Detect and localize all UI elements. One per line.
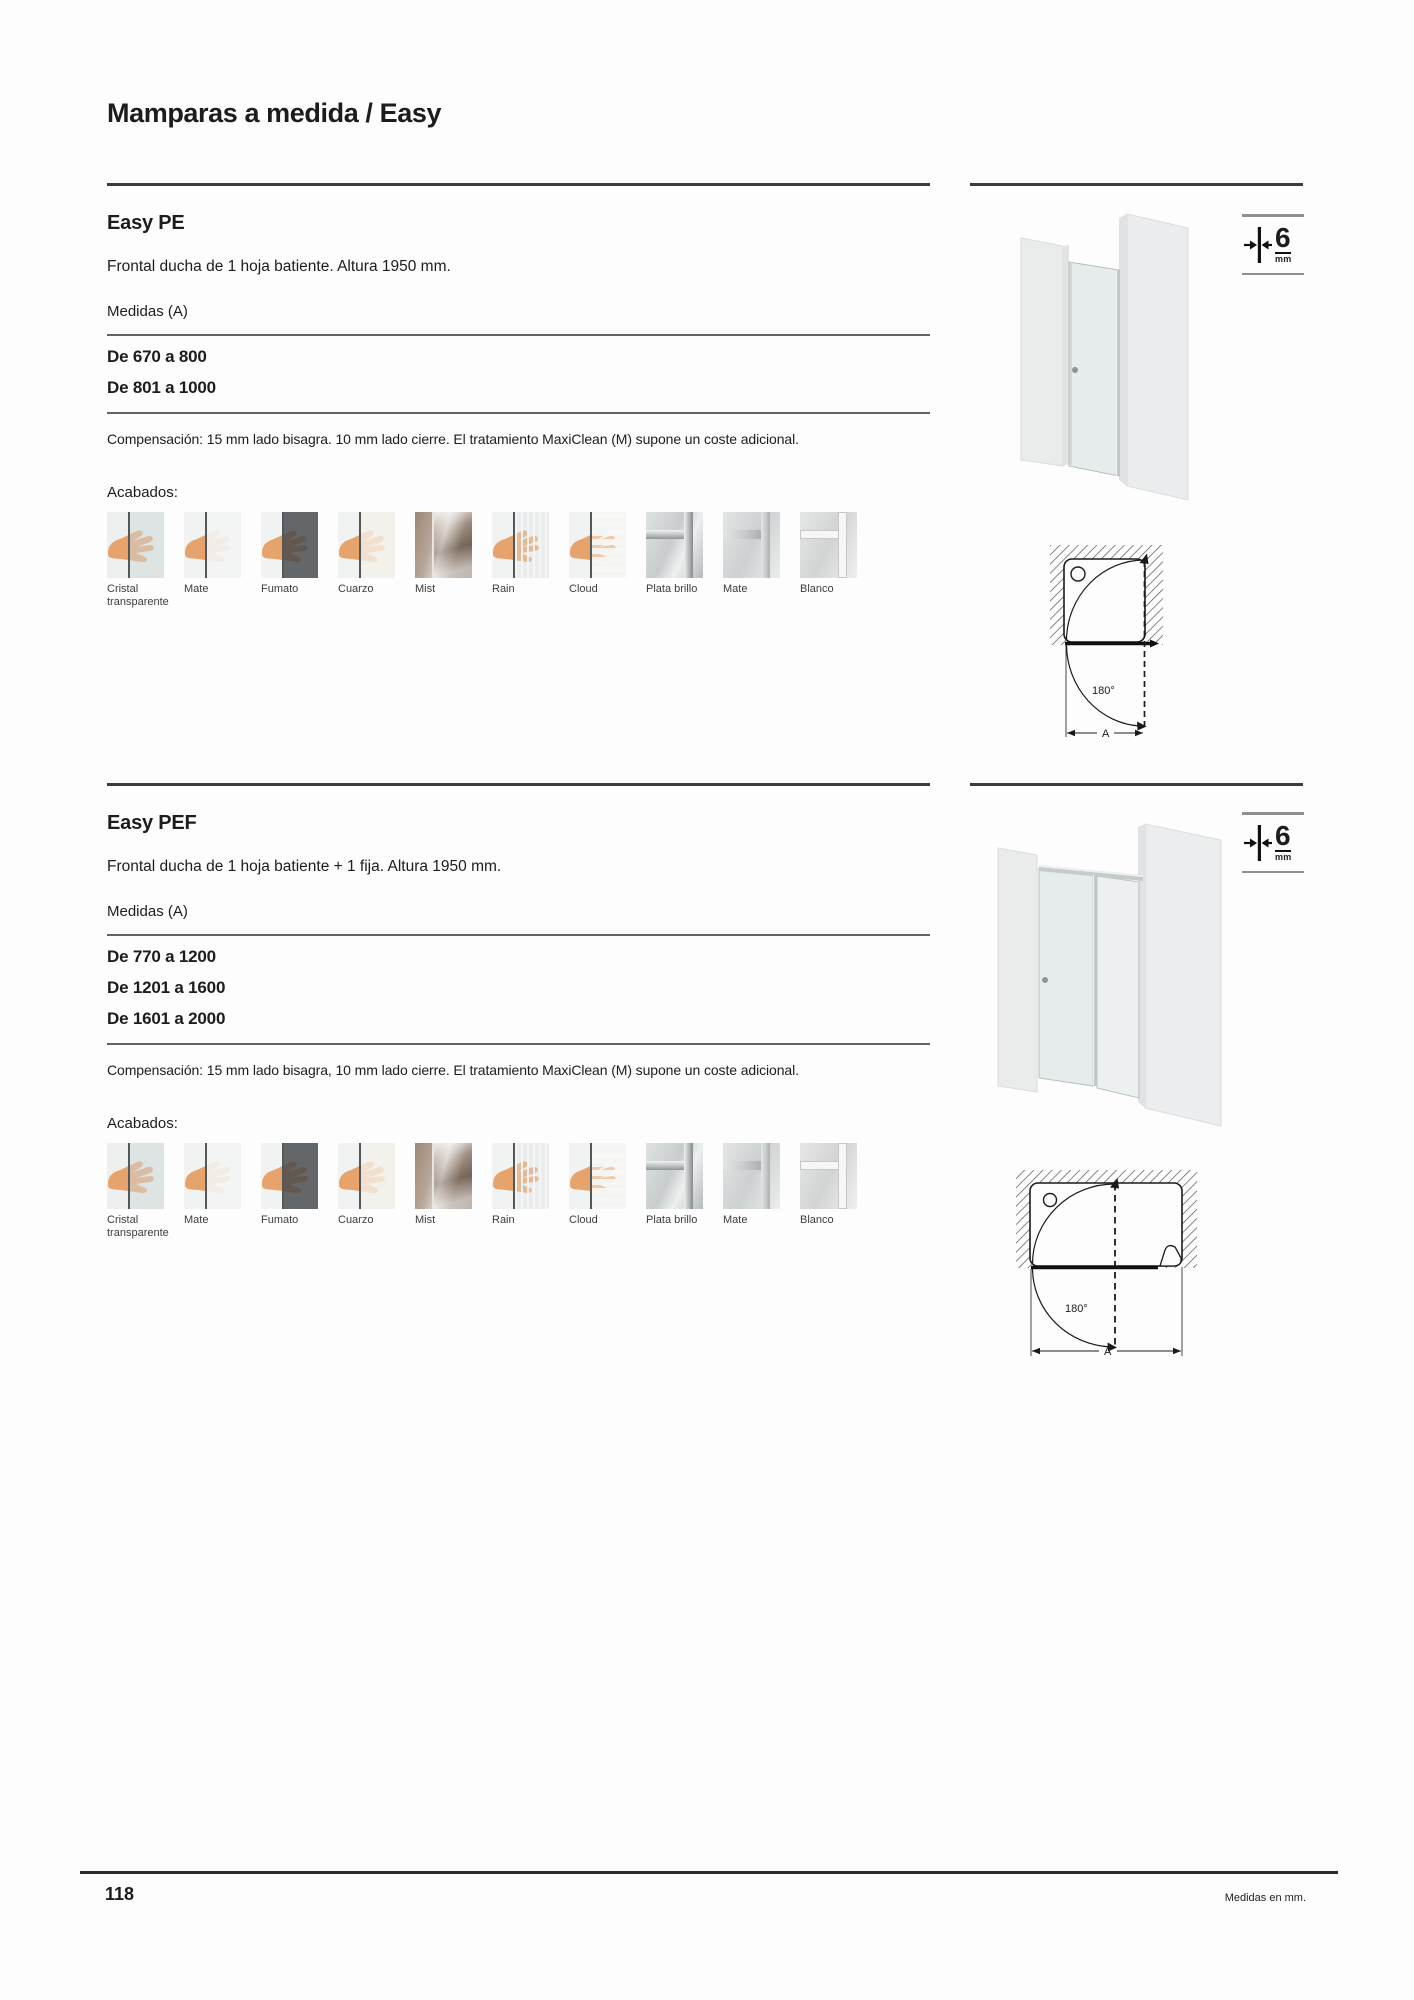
- finish-swatch-label: Cuarzo: [338, 1214, 395, 1227]
- finish-swatch-label: Mate: [184, 1214, 241, 1227]
- finish-swatch: Mate: [723, 512, 780, 609]
- finish-swatch-label: Cloud: [569, 1214, 626, 1227]
- glass-pane: [128, 1143, 164, 1209]
- section-description: Frontal ducha de 1 hoja batiente. Altura…: [107, 257, 930, 276]
- finish-swatch-label: Rain: [492, 1214, 549, 1227]
- finish-swatch-label: Mate: [184, 583, 241, 596]
- finish-swatch-label: Mate: [723, 1214, 780, 1227]
- measure-row: De 770 a 1200: [107, 940, 930, 971]
- dimension-label: A: [1102, 728, 1110, 740]
- page-number: 118: [105, 1884, 134, 1905]
- glass-pane: [590, 1143, 626, 1209]
- finish-swatch-image: [107, 1143, 164, 1209]
- angle-label: 180°: [1065, 1303, 1088, 1315]
- drain: [1071, 567, 1085, 581]
- section-easy-pe: Easy PE Frontal ducha de 1 hoja batiente…: [107, 183, 930, 609]
- finish-swatch: Cuarzo: [338, 1143, 395, 1240]
- profile-corner: [800, 1143, 857, 1209]
- finish-swatch-image: [800, 512, 857, 578]
- finish-swatch-label: Blanco: [800, 1214, 857, 1227]
- profile-corner: [646, 1143, 703, 1209]
- finish-swatch: Plata brillo: [646, 512, 703, 609]
- finish-swatch-label: Blanco: [800, 583, 857, 596]
- measures-label: Medidas (A): [107, 303, 930, 321]
- profile-corner: [800, 512, 857, 578]
- drain: [1044, 1194, 1057, 1207]
- finish-swatch-image: [107, 512, 164, 578]
- divider: [107, 1043, 930, 1045]
- finish-swatch: Fumato: [261, 1143, 318, 1240]
- section-easy-pef: Easy PEF Frontal ducha de 1 hoja batient…: [107, 783, 930, 1240]
- finish-swatch-image: [415, 512, 472, 578]
- finish-swatch: Rain: [492, 512, 549, 609]
- divider: [107, 412, 930, 414]
- finish-swatch: Blanco: [800, 1143, 857, 1240]
- measure-row: De 670 a 800: [107, 340, 930, 371]
- finish-swatch-image: [492, 512, 549, 578]
- profile-corner: [646, 512, 703, 578]
- glass-pane: [282, 1143, 318, 1209]
- finish-swatch-image: [723, 512, 780, 578]
- finish-swatch-row: Cristal transparente Mate: [107, 512, 930, 609]
- finish-swatch-image: [261, 1143, 318, 1209]
- product-render-easy-pe: [1015, 208, 1190, 523]
- section-heading: Easy PE: [107, 212, 930, 235]
- finish-swatch-label: Plata brillo: [646, 583, 703, 596]
- finish-swatch-row: Cristal transparente Mate: [107, 1143, 930, 1240]
- finish-swatch-label: Mate: [723, 583, 780, 596]
- finish-swatch: Mate: [184, 512, 241, 609]
- door-handle: [1042, 977, 1048, 983]
- finishes-label: Acabados:: [107, 1115, 930, 1133]
- measure-row: De 801 a 1000: [107, 371, 930, 402]
- finish-swatch: Blanco: [800, 512, 857, 609]
- glass-pane: [432, 1143, 472, 1209]
- glass-pane: [513, 1143, 549, 1209]
- finish-swatch-image: [492, 1143, 549, 1209]
- measures-label: Medidas (A): [107, 903, 930, 921]
- finish-swatch-image: [261, 512, 318, 578]
- finish-swatch: Cristal transparente: [107, 1143, 164, 1240]
- glass-thickness-unit: mm: [1275, 850, 1291, 862]
- finish-swatch: Cloud: [569, 512, 626, 609]
- finish-swatch: Plata brillo: [646, 1143, 703, 1240]
- measure-row: De 1601 a 2000: [107, 1002, 930, 1033]
- divider: [970, 183, 1303, 186]
- finish-swatch: Rain: [492, 1143, 549, 1240]
- glass-pane: [513, 512, 549, 578]
- divider: [80, 1871, 1338, 1874]
- finish-swatch-image: [184, 1143, 241, 1209]
- glass-thickness-unit: mm: [1275, 252, 1291, 264]
- glass-pane: [205, 1143, 241, 1209]
- finish-swatch: Cuarzo: [338, 512, 395, 609]
- glass-thickness-icon: 6mm: [1242, 214, 1304, 275]
- glass-pane: [282, 512, 318, 578]
- finishes-label: Acabados:: [107, 484, 930, 502]
- divider: [107, 183, 930, 186]
- finish-swatch-label: Mist: [415, 1214, 472, 1227]
- divider: [970, 783, 1303, 786]
- finish-swatch: Mate: [723, 1143, 780, 1240]
- finish-swatch: Mist: [415, 1143, 472, 1240]
- finish-swatch-image: [415, 1143, 472, 1209]
- finish-swatch-image: [184, 512, 241, 578]
- plan-diagram-easy-pef: 180° A: [1015, 1170, 1215, 1400]
- finish-swatch-image: [338, 1143, 395, 1209]
- finish-swatch: Mate: [184, 1143, 241, 1240]
- compensation-note: Compensación: 15 mm lado bisagra, 10 mm …: [107, 1062, 930, 1079]
- product-render-easy-pef: [993, 796, 1228, 1146]
- finish-swatch-image: [569, 1143, 626, 1209]
- finish-swatch-label: Plata brillo: [646, 1214, 703, 1227]
- glass-thickness-value: 6: [1275, 222, 1290, 253]
- divider: [107, 334, 930, 336]
- glass-pane: [432, 512, 472, 578]
- glass-pane: [205, 512, 241, 578]
- finish-swatch-label: Cloud: [569, 583, 626, 596]
- door-handle: [1072, 367, 1078, 373]
- dimension-label: A: [1104, 1346, 1112, 1358]
- finish-swatch-image: [800, 1143, 857, 1209]
- glass-pane: [590, 512, 626, 578]
- units-note: Medidas en mm.: [1225, 1892, 1306, 1904]
- finish-swatch-image: [569, 512, 626, 578]
- divider: [107, 783, 930, 786]
- finish-swatch-label: Mist: [415, 583, 472, 596]
- profile-corner: [723, 1143, 780, 1209]
- glass-pane: [128, 512, 164, 578]
- finish-swatch-label: Cristal transparente: [107, 583, 164, 609]
- compensation-note: Compensación: 15 mm lado bisagra. 10 mm …: [107, 431, 930, 448]
- finish-swatch-image: [646, 512, 703, 578]
- finish-swatch-label: Rain: [492, 583, 549, 596]
- glass-pane: [359, 512, 395, 578]
- thickness-arrows-icon: [1244, 224, 1272, 266]
- glass-thickness-value: 6: [1275, 820, 1290, 851]
- catalog-page: Mamparas a medida / Easy Easy PE Frontal…: [0, 0, 1414, 2000]
- finish-swatch-image: [338, 512, 395, 578]
- measures-list: De 670 a 800 De 801 a 1000: [107, 340, 930, 402]
- finish-swatch: Cloud: [569, 1143, 626, 1240]
- finish-swatch-label: Cristal transparente: [107, 1214, 164, 1240]
- finish-swatch: Mist: [415, 512, 472, 609]
- finish-swatch: Cristal transparente: [107, 512, 164, 609]
- finish-swatch: Fumato: [261, 512, 318, 609]
- thickness-arrows-icon: [1244, 822, 1272, 864]
- angle-label: 180°: [1092, 685, 1115, 697]
- plan-diagram-easy-pe: 180° A: [1040, 537, 1180, 747]
- measures-list: De 770 a 1200 De 1201 a 1600 De 1601 a 2…: [107, 940, 930, 1033]
- glass-pane: [359, 1143, 395, 1209]
- section-description: Frontal ducha de 1 hoja batiente + 1 fij…: [107, 857, 930, 876]
- finish-swatch-label: Fumato: [261, 1214, 318, 1227]
- finish-swatch-label: Fumato: [261, 583, 318, 596]
- profile-corner: [723, 512, 780, 578]
- finish-swatch-image: [646, 1143, 703, 1209]
- measure-row: De 1201 a 1600: [107, 971, 930, 1002]
- finish-swatch-label: Cuarzo: [338, 583, 395, 596]
- finish-swatch-image: [723, 1143, 780, 1209]
- section-heading: Easy PEF: [107, 812, 930, 835]
- glass-thickness-icon: 6mm: [1242, 812, 1304, 873]
- divider: [107, 934, 930, 936]
- page-title: Mamparas a medida / Easy: [107, 98, 441, 129]
